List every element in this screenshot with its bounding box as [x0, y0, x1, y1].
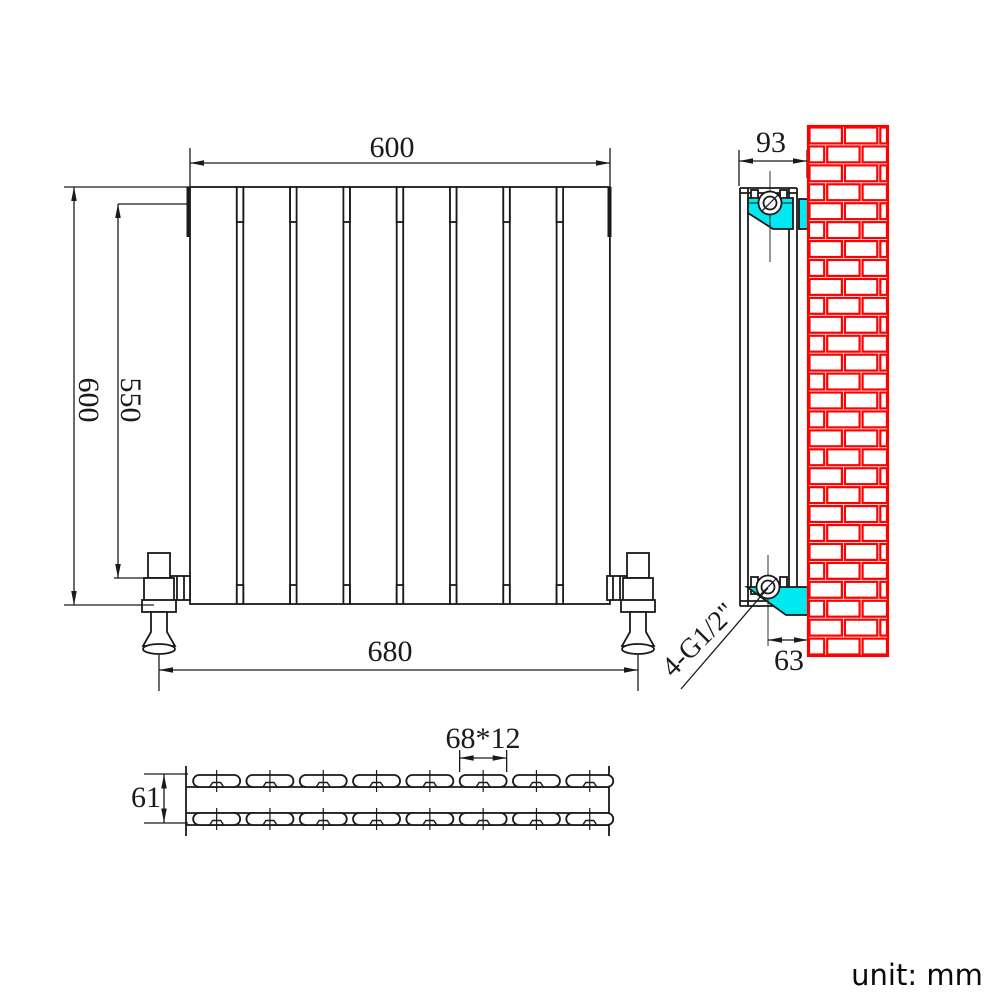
brick	[845, 165, 877, 181]
brick	[809, 336, 824, 352]
brick	[880, 544, 887, 560]
dim-height-600: 600	[72, 378, 105, 423]
brick	[863, 639, 887, 655]
brick	[810, 241, 842, 257]
brick	[810, 393, 842, 409]
brick	[880, 393, 887, 409]
brick	[827, 222, 859, 238]
brick	[827, 449, 859, 465]
connection-thread-label: 4-G1/2"	[656, 597, 742, 683]
brick	[845, 393, 877, 409]
brick	[810, 506, 842, 522]
header-joint	[450, 585, 457, 604]
brick	[880, 620, 887, 636]
brick	[845, 582, 877, 598]
brick	[880, 582, 887, 598]
brick	[863, 184, 887, 200]
top-body	[186, 766, 613, 836]
header-joint	[343, 187, 350, 222]
brick	[810, 620, 842, 636]
brick	[827, 601, 859, 617]
brick	[880, 203, 887, 219]
brick	[810, 468, 842, 484]
panel	[243, 187, 290, 604]
brick	[845, 128, 877, 144]
brick	[863, 601, 887, 617]
top-view: 68*12 61	[131, 722, 613, 836]
valve-right	[607, 553, 655, 654]
header-joint	[343, 585, 350, 604]
brick	[863, 260, 887, 276]
brick	[827, 336, 859, 352]
header-joint	[503, 187, 510, 222]
dim-depth-61: 61	[131, 781, 161, 814]
brick	[827, 525, 859, 541]
panel	[457, 187, 504, 604]
header-joint	[237, 187, 244, 222]
header-joint	[290, 187, 297, 222]
panel	[510, 187, 557, 604]
header-joint	[397, 585, 404, 604]
dim-height-inner-550: 550	[114, 378, 147, 423]
brick	[845, 355, 877, 371]
brick	[810, 128, 842, 144]
brick	[827, 563, 859, 579]
brick	[810, 165, 842, 181]
dim-width-600: 600	[370, 131, 415, 164]
brick	[845, 279, 877, 295]
brick	[809, 449, 824, 465]
brick	[827, 298, 859, 314]
brick	[845, 430, 877, 446]
brick	[809, 487, 824, 503]
brick	[827, 260, 859, 276]
brick	[845, 203, 877, 219]
brick	[827, 374, 859, 390]
brick	[810, 430, 842, 446]
valve-left	[142, 553, 190, 654]
brick	[809, 411, 824, 427]
dim-depth-93: 93	[756, 126, 786, 159]
unit-note: unit: mm	[851, 958, 983, 992]
technical-drawing-page: 600 600 550 680 93 63 4-G1/2" 68*12 61 u…	[0, 0, 1001, 1001]
brick	[810, 582, 842, 598]
brick	[845, 544, 877, 560]
brick	[880, 128, 887, 144]
brick	[845, 620, 877, 636]
brick	[880, 165, 887, 181]
side-body	[740, 188, 797, 606]
brick	[810, 317, 842, 333]
header-joint	[290, 585, 297, 604]
panel	[190, 187, 237, 604]
panel	[563, 187, 610, 604]
panel	[297, 187, 344, 604]
brick	[810, 203, 842, 219]
brick	[827, 487, 859, 503]
brick	[809, 374, 824, 390]
brick	[863, 525, 887, 541]
brick	[880, 506, 887, 522]
brick	[845, 468, 877, 484]
side-view: 93 63 4-G1/2"	[656, 126, 808, 689]
brick	[880, 468, 887, 484]
brick	[863, 374, 887, 390]
front-view: 600 600 550 680	[64, 131, 655, 691]
brick	[863, 222, 887, 238]
brick	[863, 146, 887, 162]
brick	[863, 336, 887, 352]
brick	[880, 317, 887, 333]
brick	[809, 639, 824, 655]
radiator-dimension-drawing: 600 600 550 680 93 63 4-G1/2" 68*12 61 u…	[0, 0, 1001, 1001]
brick	[809, 525, 824, 541]
brick-wall	[808, 126, 888, 656]
brick	[863, 411, 887, 427]
brick	[845, 317, 877, 333]
brick	[880, 241, 887, 257]
panel	[403, 187, 450, 604]
brick	[845, 506, 877, 522]
brick	[880, 355, 887, 371]
brick	[880, 279, 887, 295]
header-joint	[503, 585, 510, 604]
brick	[827, 411, 859, 427]
header-joint	[557, 585, 564, 604]
dim-bracket-63: 63	[774, 644, 804, 677]
header-joint	[450, 187, 457, 222]
brick	[809, 563, 824, 579]
brick	[827, 184, 859, 200]
brick	[863, 487, 887, 503]
brick	[810, 279, 842, 295]
brick	[827, 639, 859, 655]
brick	[827, 146, 859, 162]
brick	[863, 563, 887, 579]
radiator-panels	[190, 187, 610, 604]
brick	[880, 430, 887, 446]
dim-slot-68x12: 68*12	[446, 722, 521, 755]
panel	[350, 187, 397, 604]
brick	[809, 184, 824, 200]
brick	[809, 298, 824, 314]
brick	[845, 241, 877, 257]
brick	[809, 222, 824, 238]
brick	[863, 449, 887, 465]
brick	[809, 146, 824, 162]
brick	[810, 355, 842, 371]
dim-valve-span-680: 680	[368, 635, 413, 668]
brick	[809, 601, 824, 617]
header-joint	[557, 187, 564, 222]
brick	[810, 544, 842, 560]
header-joint	[237, 585, 244, 604]
brick	[863, 298, 887, 314]
brick	[809, 260, 824, 276]
header-joint	[397, 187, 404, 222]
